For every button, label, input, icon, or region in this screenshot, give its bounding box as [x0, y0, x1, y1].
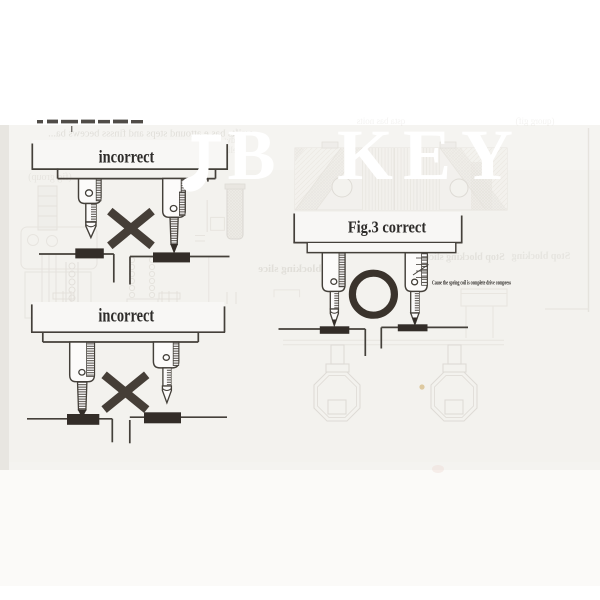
- svg-text:Cause the spring coil is compl: Cause the spring coil is complete drive …: [432, 280, 511, 287]
- svg-text:Fig.3 correct: Fig.3 correct: [348, 218, 427, 236]
- svg-text:Stop blocking slice: Stop blocking slice: [425, 252, 505, 263]
- svg-text:(fig group): (fig group): [28, 172, 72, 183]
- svg-text:B: B: [228, 115, 276, 195]
- svg-text:KEY: KEY: [337, 115, 523, 195]
- svg-text:Stop blocking: Stop blocking: [512, 251, 571, 262]
- svg-text:incorrect: incorrect: [99, 146, 155, 167]
- svg-text:incorrect: incorrect: [98, 305, 154, 326]
